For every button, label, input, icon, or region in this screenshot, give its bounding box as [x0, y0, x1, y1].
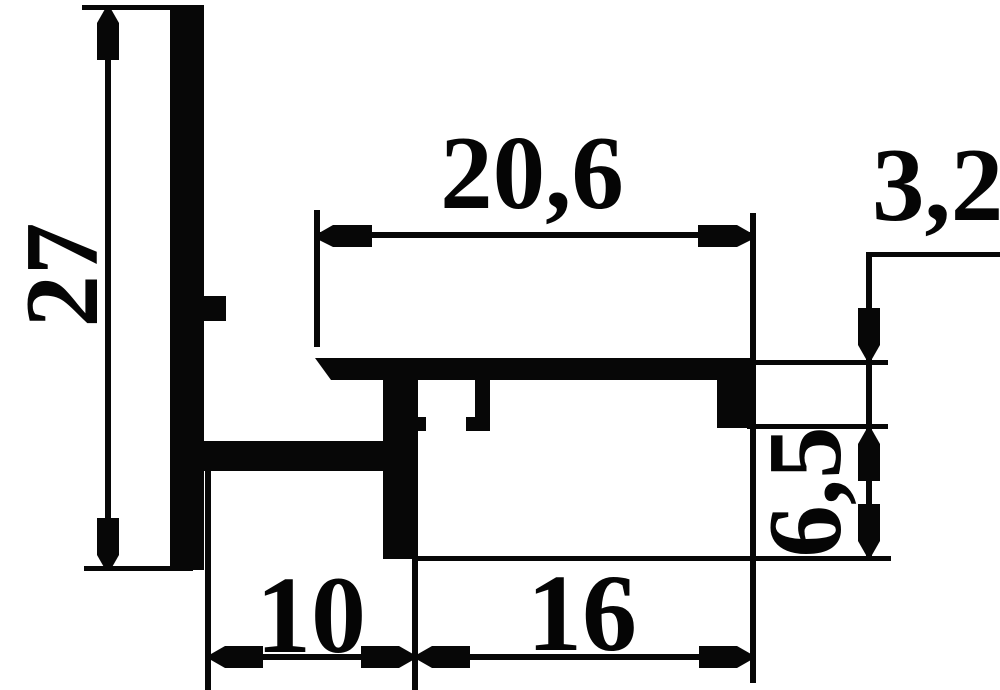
- svg-text:3,2: 3,2: [872, 126, 1000, 243]
- svg-text:6,5: 6,5: [746, 426, 863, 557]
- svg-text:10: 10: [256, 554, 366, 676]
- svg-text:27: 27: [3, 223, 120, 328]
- svg-text:20,6: 20,6: [440, 114, 624, 231]
- svg-text:16: 16: [527, 552, 637, 674]
